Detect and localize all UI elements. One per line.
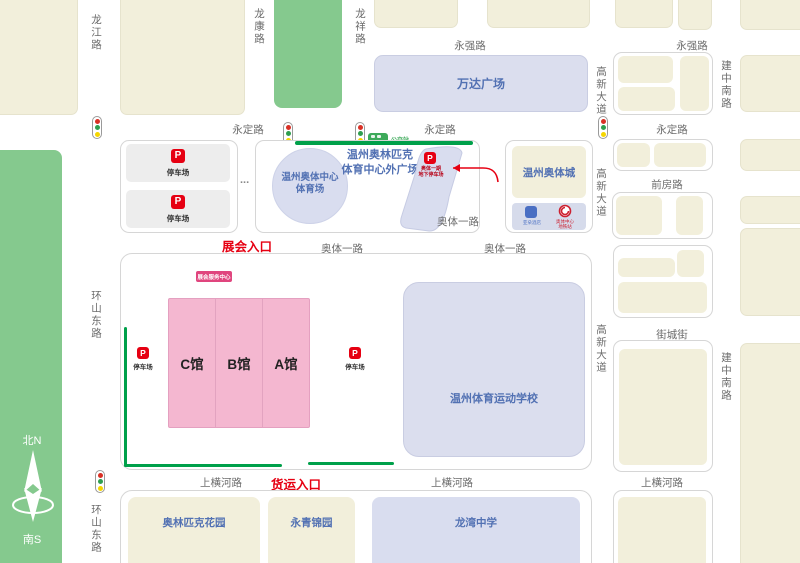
traffic-light-icon <box>598 116 608 139</box>
city-block <box>618 497 706 563</box>
ellipsis: ... <box>240 174 249 186</box>
city-block <box>654 143 706 167</box>
road-label-longjiang: 龙江路 <box>89 14 104 52</box>
aoticheng-label: 温州奥体城 <box>523 165 576 180</box>
road-label-jianzhong: 建中南路 <box>719 352 734 402</box>
parking-label: 停车场 <box>345 361 365 371</box>
wanda-plaza-block: 万达广场 <box>374 55 588 112</box>
city-block <box>619 349 707 465</box>
hall-a: A馆 <box>262 299 309 427</box>
city-block <box>678 0 712 30</box>
venue-map: 龙江路 龙康路 龙祥路 永强路 永强路 万达广场 高新大道 建中南路 永定路 永… <box>0 0 800 563</box>
metro-label-line2: 地铁站 <box>553 224 577 229</box>
city-block <box>740 343 800 563</box>
parking-route-arrow <box>443 158 500 184</box>
longwan-school-block: 龙湾中学 <box>372 497 580 563</box>
olympic-garden-block: 奥林匹克花园 <box>128 497 260 563</box>
city-block <box>677 250 704 277</box>
yongqing-garden-label: 永青锦园 <box>291 515 333 558</box>
parking-p-icon: P <box>171 149 185 163</box>
compass-needle-icon <box>11 448 55 528</box>
road-label-gaoxin: 高新大道 <box>594 168 609 218</box>
road-label-jianzhong: 建中南路 <box>719 60 734 110</box>
parking-p-icon: P <box>171 195 185 209</box>
route-line-green <box>124 327 127 467</box>
road-label-qianfang: 前房路 <box>651 177 683 192</box>
road-label-shanghenghe: 上横河路 <box>641 475 683 490</box>
city-block <box>374 0 458 28</box>
city-block <box>618 258 675 277</box>
road-label-yongqiang: 永强路 <box>676 38 708 53</box>
hotel-label: 亚朵酒店 <box>520 220 544 225</box>
compass-south-label: 南S <box>10 531 54 547</box>
hotel-icon <box>525 206 537 218</box>
yongqing-garden-block: 永青锦园 <box>268 497 355 563</box>
road-label-yongding: 永定路 <box>232 122 264 137</box>
parking-label: 停车场 <box>167 213 190 224</box>
city-block <box>617 143 650 167</box>
green-park-block <box>274 0 342 108</box>
city-block <box>618 282 707 313</box>
road-label-longkang: 龙康路 <box>252 8 267 46</box>
road-label-huanshan: 环山东路 <box>89 290 104 340</box>
underground-parking-line2: 地下停车场 <box>418 172 443 178</box>
road-label-shanghenghe: 上横河路 <box>200 475 242 490</box>
route-line-green <box>124 464 282 467</box>
underground-parking-p-icon: P <box>424 152 436 164</box>
road-label-gaoxin: 高新大道 <box>594 66 609 116</box>
longwan-school-label: 龙湾中学 <box>455 515 497 558</box>
city-block <box>615 0 673 28</box>
service-center-badge: 展会服务中心 <box>196 271 232 282</box>
compass-north-label: 北N <box>10 432 54 448</box>
wanda-plaza-label: 万达广场 <box>457 75 505 92</box>
city-block <box>680 56 709 111</box>
road-label-longxiang: 龙祥路 <box>353 8 368 46</box>
road-label-aoti: 奥体一路 <box>437 214 479 229</box>
route-line-green <box>308 462 394 465</box>
aoticheng-inner-block: 温州奥体城 <box>512 146 586 198</box>
parking-label: 停车场 <box>133 361 153 371</box>
road-label-yongding: 永定路 <box>656 122 688 137</box>
city-block <box>0 0 78 115</box>
road-label-gaoxin: 高新大道 <box>594 324 609 374</box>
hall-b: B馆 <box>215 299 262 427</box>
olympic-garden-label: 奥林匹克花园 <box>163 515 226 558</box>
city-block <box>740 0 800 30</box>
service-center-label: 展会服务中心 <box>197 273 230 281</box>
exhibition-halls: C馆 B馆 A馆 <box>168 298 310 428</box>
parking-p-icon: P <box>349 347 361 359</box>
city-block <box>740 228 800 316</box>
parking-p-icon: P <box>137 347 149 359</box>
traffic-light-icon <box>95 470 105 493</box>
city-block <box>120 0 245 115</box>
city-block <box>616 196 662 235</box>
sports-school-label: 温州体育运动学校 <box>403 390 585 406</box>
metro-icon <box>558 204 572 218</box>
city-block <box>487 0 590 28</box>
road-label-shanghenghe: 上横河路 <box>431 475 473 490</box>
city-block <box>618 87 675 111</box>
metro-label: 奥体中心 地铁站 <box>553 219 577 229</box>
city-block <box>740 196 800 224</box>
road-label-yongding: 永定路 <box>424 122 456 137</box>
stadium-label-line2: 体育场 <box>272 184 348 196</box>
traffic-light-icon <box>92 116 102 139</box>
city-block <box>618 56 673 83</box>
hall-c: C馆 <box>169 299 215 427</box>
sports-school-block <box>403 282 585 457</box>
road-label-yongqiang: 永强路 <box>454 38 486 53</box>
road-label-huanshan: 环山东路 <box>89 504 104 554</box>
city-block <box>740 139 800 171</box>
parking-label: 停车场 <box>167 167 190 178</box>
underground-parking-label: 奥体一期 地下停车场 <box>418 166 443 178</box>
city-block <box>740 55 800 112</box>
city-block <box>676 196 703 235</box>
